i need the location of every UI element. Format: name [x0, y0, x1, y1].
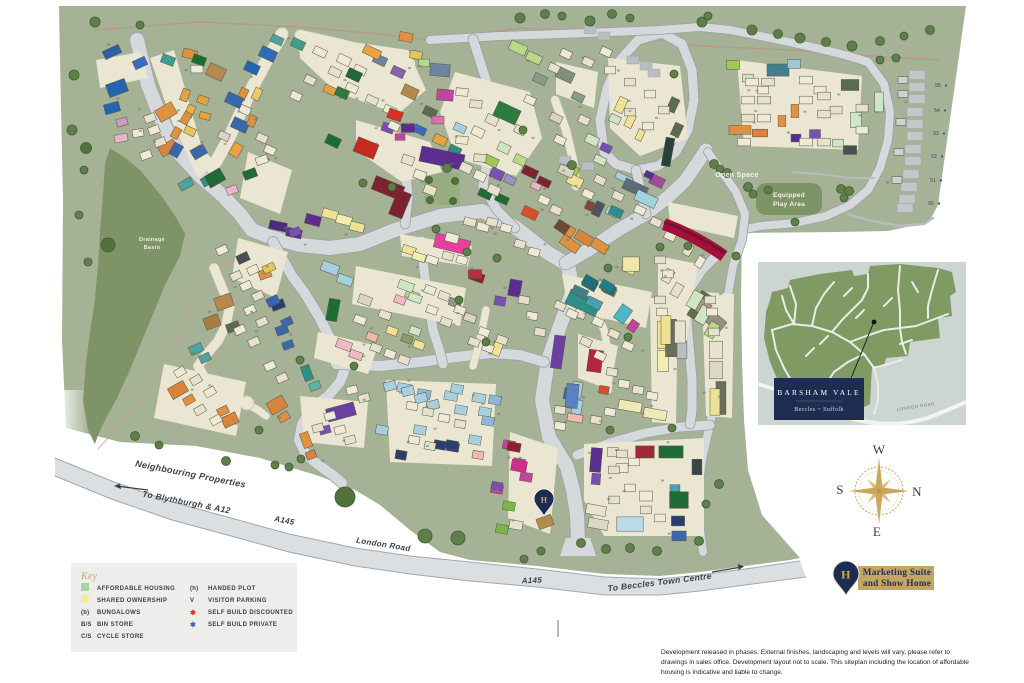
svg-text:C/S: C/S	[81, 634, 92, 640]
svg-text:S: S	[836, 482, 844, 497]
svg-text:A145: A145	[521, 576, 543, 586]
svg-text:AFFORDABLE HOUSING: AFFORDABLE HOUSING	[97, 586, 175, 592]
svg-text:CYCLE STORE: CYCLE STORE	[97, 634, 144, 640]
svg-text:E: E	[873, 524, 881, 539]
svg-text:51: 51	[930, 178, 936, 184]
svg-text:Marketing Suite: Marketing Suite	[863, 567, 932, 577]
svg-text:V: V	[190, 598, 194, 604]
svg-text:SHARED OWNERSHIP: SHARED OWNERSHIP	[97, 598, 167, 604]
svg-text:BARSHAM VALE: BARSHAM VALE	[777, 388, 860, 397]
svg-text:VISITOR PARKING: VISITOR PARKING	[208, 598, 267, 604]
svg-text:W: W	[873, 442, 886, 457]
svg-text:HANDED PLOT: HANDED PLOT	[208, 586, 256, 592]
svg-text:H: H	[541, 496, 548, 505]
svg-text:(b): (b)	[81, 610, 89, 616]
svg-text:Key: Key	[80, 571, 98, 582]
svg-text:✱: ✱	[190, 621, 196, 629]
svg-text:SELF BUILD PRIVATE: SELF BUILD PRIVATE	[208, 622, 277, 628]
svg-text:53: 53	[933, 131, 939, 137]
svg-text:55: 55	[935, 83, 941, 89]
svg-text:drawings in sales office. Deve: drawings in sales office. Development la…	[661, 659, 969, 666]
svg-text:✱: ✱	[190, 609, 196, 617]
svg-text:SELF BUILD DISCOUNTED: SELF BUILD DISCOUNTED	[208, 610, 293, 616]
svg-text:54: 54	[934, 108, 940, 114]
svg-text:H: H	[841, 568, 851, 582]
svg-text:Open Space: Open Space	[715, 172, 758, 179]
svg-text:52: 52	[931, 154, 937, 160]
svg-text:housing is indicative and liab: housing is indicative and liable to chan…	[661, 669, 783, 676]
svg-text:Play Area: Play Area	[773, 201, 805, 208]
svg-text:BUNGALOWS: BUNGALOWS	[97, 610, 141, 616]
svg-text:(h): (h)	[190, 586, 198, 592]
svg-text:Basin: Basin	[144, 245, 161, 251]
svg-text:Equipped: Equipped	[773, 192, 805, 199]
svg-text:Drainage: Drainage	[139, 237, 165, 243]
svg-text:Development released in phases: Development released in phases. External…	[661, 649, 950, 656]
svg-text:BIN STORE: BIN STORE	[97, 622, 133, 628]
svg-text:N: N	[912, 484, 922, 499]
svg-text:and Show Home: and Show Home	[863, 578, 931, 588]
svg-text:Beccles ~ Suffolk: Beccles ~ Suffolk	[794, 406, 844, 413]
svg-text:B/S: B/S	[81, 622, 92, 628]
svg-text:50: 50	[928, 201, 934, 207]
